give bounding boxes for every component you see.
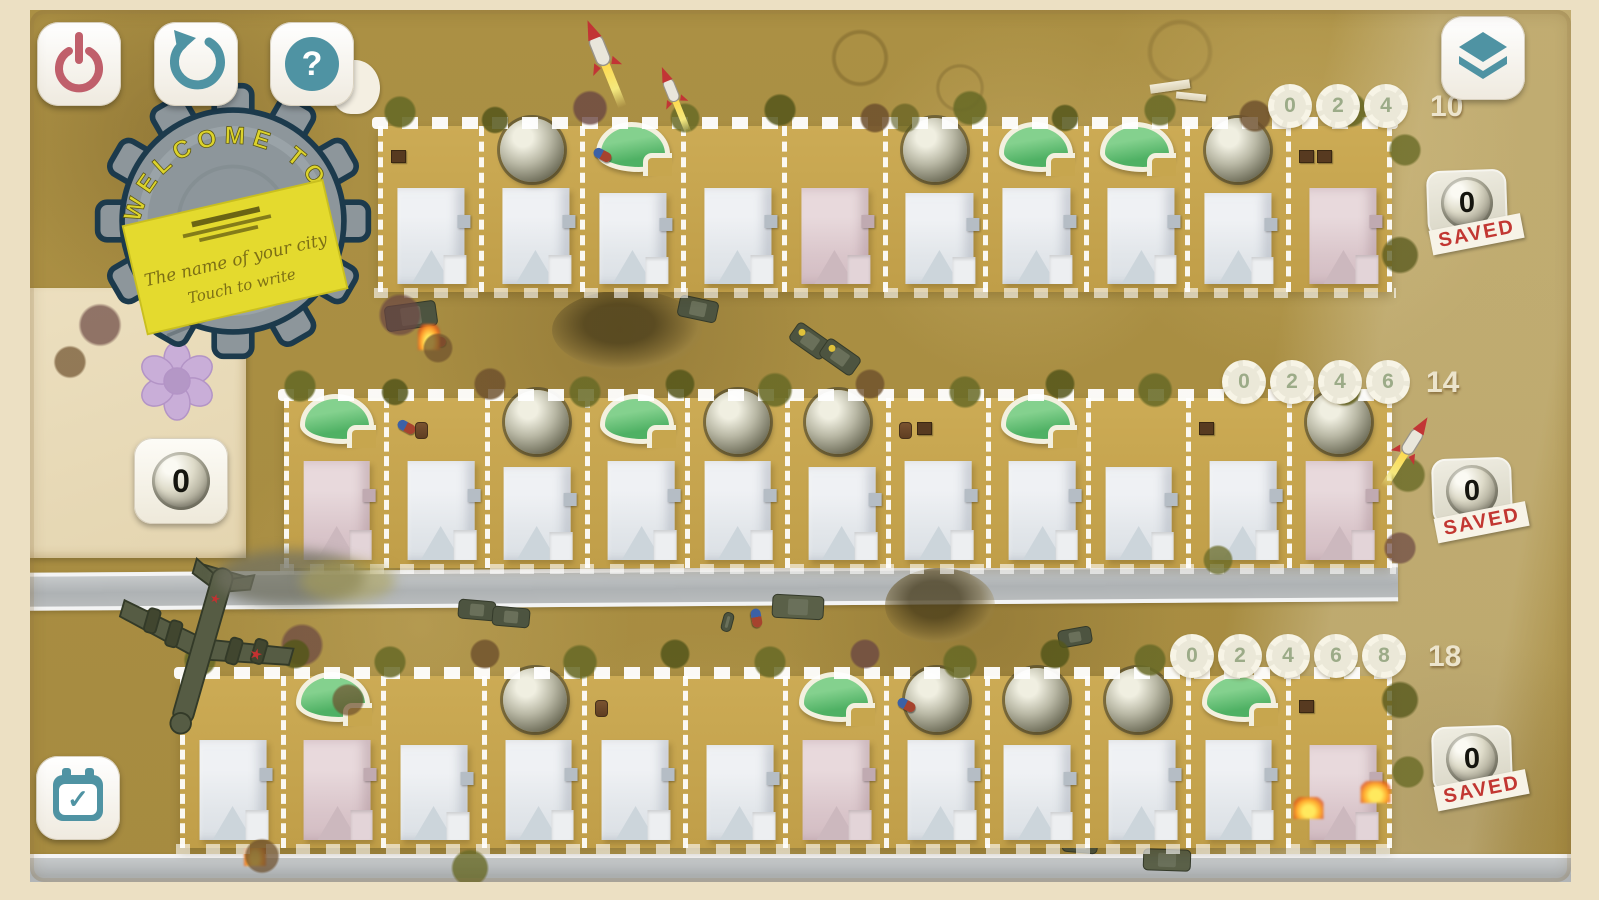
- house-chimney: [1168, 215, 1181, 228]
- house-garage: [1256, 530, 1279, 560]
- house-garage: [350, 810, 373, 840]
- house: [906, 193, 973, 284]
- pool: [596, 122, 670, 172]
- park-score-badge[interactable]: 2: [1316, 84, 1360, 128]
- house-chimney: [563, 493, 576, 506]
- house-garage: [1155, 810, 1178, 840]
- house-lot[interactable]: [378, 126, 479, 292]
- house-garage: [454, 530, 477, 560]
- house-chimney: [1165, 493, 1178, 506]
- street-2-saved-counter[interactable]: 0 SAVED: [1431, 457, 1513, 526]
- house-garage: [1151, 532, 1174, 560]
- house-lot[interactable]: [782, 126, 883, 292]
- confirm-button[interactable]: ✓: [36, 756, 120, 840]
- pool: [1100, 122, 1174, 172]
- box-marker: [1299, 150, 1314, 163]
- house-garage: [444, 255, 467, 284]
- house-lot[interactable]: [1085, 676, 1186, 848]
- house: [602, 740, 669, 840]
- house: [599, 193, 666, 284]
- house-garage: [855, 532, 878, 560]
- park-score-badge[interactable]: 6: [1366, 360, 1410, 404]
- park-score-badge[interactable]: 2: [1218, 634, 1262, 678]
- house-garage: [648, 810, 671, 840]
- park-score-value: 6: [1382, 370, 1394, 394]
- street-3: [180, 676, 1392, 848]
- house-lot[interactable]: [479, 126, 580, 292]
- park-score-badge[interactable]: 0: [1268, 84, 1312, 128]
- help-button[interactable]: ?: [270, 22, 354, 106]
- military-truck: [771, 594, 824, 621]
- house-chimney: [460, 772, 473, 785]
- house-garage: [349, 530, 372, 560]
- house-lot[interactable]: [783, 676, 884, 848]
- house: [704, 461, 771, 560]
- box-marker: [1299, 700, 1314, 713]
- house-lot[interactable]: [1086, 398, 1186, 568]
- house-garage: [1251, 257, 1274, 284]
- box-marker: [1317, 150, 1332, 163]
- power-icon: [37, 22, 121, 106]
- restart-button[interactable]: [154, 22, 238, 106]
- house-chimney: [967, 768, 980, 781]
- park-score-badge[interactable]: 4: [1318, 360, 1362, 404]
- house: [907, 740, 974, 840]
- house-lot[interactable]: [1286, 676, 1392, 848]
- house-garage: [1356, 812, 1379, 840]
- house-lot[interactable]: [883, 126, 984, 292]
- house-chimney: [965, 489, 978, 502]
- park-score-value: 0: [1238, 370, 1250, 394]
- dome-shelter: [806, 390, 870, 454]
- dome-shelter: [505, 390, 569, 454]
- soldier-marker: [396, 418, 417, 436]
- house-garage: [1356, 255, 1379, 284]
- street-2-max-score: 14: [1426, 366, 1459, 400]
- park-score-value: 4: [1380, 94, 1392, 118]
- house: [704, 188, 771, 284]
- dome-shelter: [503, 668, 567, 732]
- house-chimney: [764, 489, 777, 502]
- house-chimney: [764, 215, 777, 228]
- house-lot[interactable]: [281, 676, 382, 848]
- house-chimney: [1168, 768, 1181, 781]
- house-lot[interactable]: [683, 676, 784, 848]
- house-lot[interactable]: [985, 676, 1086, 848]
- house: [1310, 188, 1377, 284]
- house-garage: [551, 810, 574, 840]
- house-lot[interactable]: [986, 398, 1086, 568]
- dome-shelter: [903, 118, 967, 182]
- house: [608, 461, 675, 560]
- house-lot[interactable]: [884, 676, 985, 848]
- barrel-marker: [595, 700, 608, 717]
- house-lot[interactable]: [1084, 126, 1185, 292]
- house: [905, 461, 972, 560]
- house-chimney: [863, 768, 876, 781]
- house: [1108, 188, 1175, 284]
- house: [706, 745, 773, 840]
- park-score-value: 4: [1282, 644, 1294, 668]
- park-score-value: 0: [1284, 94, 1296, 118]
- house: [304, 740, 371, 840]
- fire: [1361, 781, 1391, 803]
- house: [1004, 745, 1071, 840]
- house-lot[interactable]: [1185, 126, 1286, 292]
- box-marker: [391, 150, 406, 163]
- park-score-value: 8: [1378, 644, 1390, 668]
- house-lot[interactable]: [886, 398, 986, 568]
- house-chimney: [1063, 215, 1076, 228]
- layers-icon: [1441, 16, 1525, 100]
- house-garage: [750, 255, 773, 284]
- house-chimney: [565, 768, 578, 781]
- house-garage: [1055, 530, 1078, 560]
- house: [502, 188, 569, 284]
- park-score-badge[interactable]: 2: [1270, 360, 1314, 404]
- pool: [296, 672, 370, 722]
- house-chimney: [1265, 768, 1278, 781]
- house-garage: [1251, 810, 1274, 840]
- layers-button[interactable]: [1441, 16, 1525, 100]
- welcome-to-logo: WELCOME TO The name of your city Touch t…: [92, 80, 374, 362]
- pool: [999, 122, 1073, 172]
- house-lot[interactable]: [1186, 676, 1287, 848]
- house-chimney: [868, 493, 881, 506]
- pool: [1202, 672, 1276, 722]
- house-chimney: [1069, 489, 1082, 502]
- box-marker: [917, 422, 932, 435]
- house-lot[interactable]: [685, 398, 785, 568]
- park-score-value: 6: [1330, 644, 1342, 668]
- house: [1105, 467, 1172, 561]
- park-score-badge[interactable]: 0: [1170, 634, 1214, 678]
- house: [408, 461, 475, 560]
- barrel-marker: [899, 422, 912, 439]
- pool: [600, 394, 674, 444]
- box-marker: [1199, 422, 1214, 435]
- house-chimney: [364, 768, 377, 781]
- house-garage: [549, 255, 572, 284]
- house-lot[interactable]: [785, 398, 885, 568]
- military-jeep: [491, 605, 531, 628]
- park-score-track-1: 024: [1268, 84, 1408, 128]
- game-board: 024 0246 02468 10 14 18 0 SAVED 0 SAVED …: [0, 0, 1599, 900]
- house-garage: [245, 810, 268, 840]
- house-garage: [1050, 812, 1073, 840]
- house: [1205, 193, 1272, 284]
- house: [504, 467, 571, 561]
- house: [809, 467, 876, 561]
- house-chimney: [458, 215, 471, 228]
- house-lot[interactable]: [1186, 398, 1286, 568]
- house-garage: [646, 257, 669, 284]
- pool: [799, 672, 873, 722]
- house-chimney: [1370, 215, 1383, 228]
- house-chimney: [662, 768, 675, 781]
- house-garage: [951, 530, 974, 560]
- dome-shelter: [1106, 668, 1170, 732]
- park-score-value: 2: [1332, 94, 1344, 118]
- house-lot[interactable]: [983, 126, 1084, 292]
- street-3-max-score: 18: [1428, 640, 1461, 674]
- house-garage: [447, 812, 470, 840]
- house-garage: [752, 812, 775, 840]
- house: [397, 188, 464, 284]
- house-lot[interactable]: [585, 398, 685, 568]
- plan-count: 0: [152, 452, 210, 510]
- house-chimney: [861, 215, 874, 228]
- park-score-badge[interactable]: 0: [1222, 360, 1266, 404]
- park-score-value: 4: [1334, 370, 1346, 394]
- house-chimney: [363, 489, 376, 502]
- house: [1003, 188, 1070, 284]
- house: [505, 740, 572, 840]
- house-garage: [654, 530, 677, 560]
- park-score-track-3: 02468: [1170, 634, 1406, 678]
- dome-shelter: [706, 390, 770, 454]
- house-chimney: [659, 218, 672, 231]
- house: [1306, 461, 1373, 560]
- house-lot[interactable]: [381, 676, 482, 848]
- house-garage: [952, 257, 975, 284]
- house: [1205, 740, 1272, 840]
- house-lot[interactable]: [681, 126, 782, 292]
- house-lot[interactable]: [1286, 126, 1392, 292]
- house-garage: [849, 810, 872, 840]
- street-1: [378, 126, 1392, 292]
- house-garage: [1049, 255, 1072, 284]
- house-chimney: [1064, 772, 1077, 785]
- dome-shelter: [1005, 668, 1069, 732]
- street-2: [284, 398, 1392, 568]
- power-button[interactable]: [37, 22, 121, 106]
- street-3-saved-counter[interactable]: 0 SAVED: [1431, 725, 1513, 794]
- house: [803, 740, 870, 840]
- pool: [1001, 394, 1075, 444]
- barrel-marker: [415, 422, 428, 439]
- house-chimney: [1269, 489, 1282, 502]
- fire: [1294, 797, 1324, 819]
- house-garage: [847, 255, 870, 284]
- dome-shelter: [1206, 118, 1270, 182]
- fire: [418, 324, 440, 350]
- house: [1009, 461, 1076, 560]
- house-lot[interactable]: [580, 126, 681, 292]
- house-garage: [954, 810, 977, 840]
- park-score-badge[interactable]: 4: [1266, 634, 1310, 678]
- house-chimney: [467, 489, 480, 502]
- question-icon: ?: [285, 37, 339, 91]
- house: [1210, 461, 1277, 560]
- dome-shelter: [905, 668, 969, 732]
- park-score-badge[interactable]: 6: [1314, 634, 1358, 678]
- calendar-check-icon: ✓: [53, 775, 103, 821]
- house-lot[interactable]: [284, 398, 384, 568]
- house: [1109, 740, 1176, 840]
- house-chimney: [668, 489, 681, 502]
- house-chimney: [1265, 218, 1278, 231]
- park-score-badge[interactable]: 4: [1364, 84, 1408, 128]
- house: [801, 188, 868, 284]
- park-score-track-2: 0246: [1222, 360, 1410, 404]
- house: [400, 745, 467, 840]
- park-score-value: 2: [1234, 644, 1246, 668]
- bomb-crater: [885, 568, 995, 643]
- house-lot[interactable]: [482, 676, 583, 848]
- park-score-value: 2: [1286, 370, 1298, 394]
- house-chimney: [766, 772, 779, 785]
- house-lot[interactable]: [582, 676, 683, 848]
- house-chimney: [562, 215, 575, 228]
- smoke-plume: [300, 560, 395, 602]
- house-lot[interactable]: [384, 398, 484, 568]
- house-garage: [750, 530, 773, 560]
- house-garage: [1154, 255, 1177, 284]
- house-lot[interactable]: [485, 398, 585, 568]
- house: [1310, 745, 1377, 840]
- park-score-badge[interactable]: 8: [1362, 634, 1406, 678]
- plan-counter-button[interactable]: 0: [134, 438, 228, 524]
- restart-icon: [154, 22, 238, 106]
- pool: [300, 394, 374, 444]
- park-score-value: 0: [1186, 644, 1198, 668]
- dome-shelter: [500, 118, 564, 182]
- house-garage: [1352, 530, 1375, 560]
- street-1-saved-counter[interactable]: 0 SAVED: [1426, 169, 1508, 238]
- house-garage: [550, 532, 573, 560]
- house-chimney: [966, 218, 979, 231]
- house: [303, 461, 370, 560]
